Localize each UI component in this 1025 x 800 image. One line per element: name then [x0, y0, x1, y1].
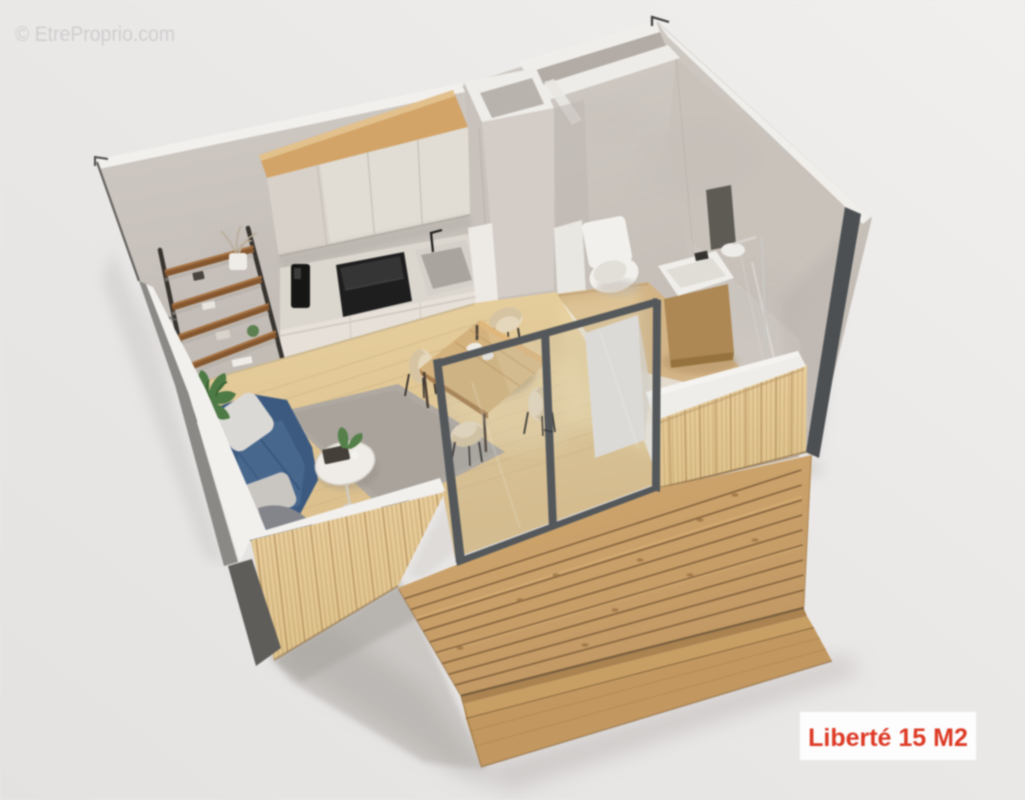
svg-text:Liberté 15 M2: Liberté 15 M2 — [808, 724, 968, 752]
svg-text:© EtreProprio.com: © EtreProprio.com — [15, 23, 175, 46]
